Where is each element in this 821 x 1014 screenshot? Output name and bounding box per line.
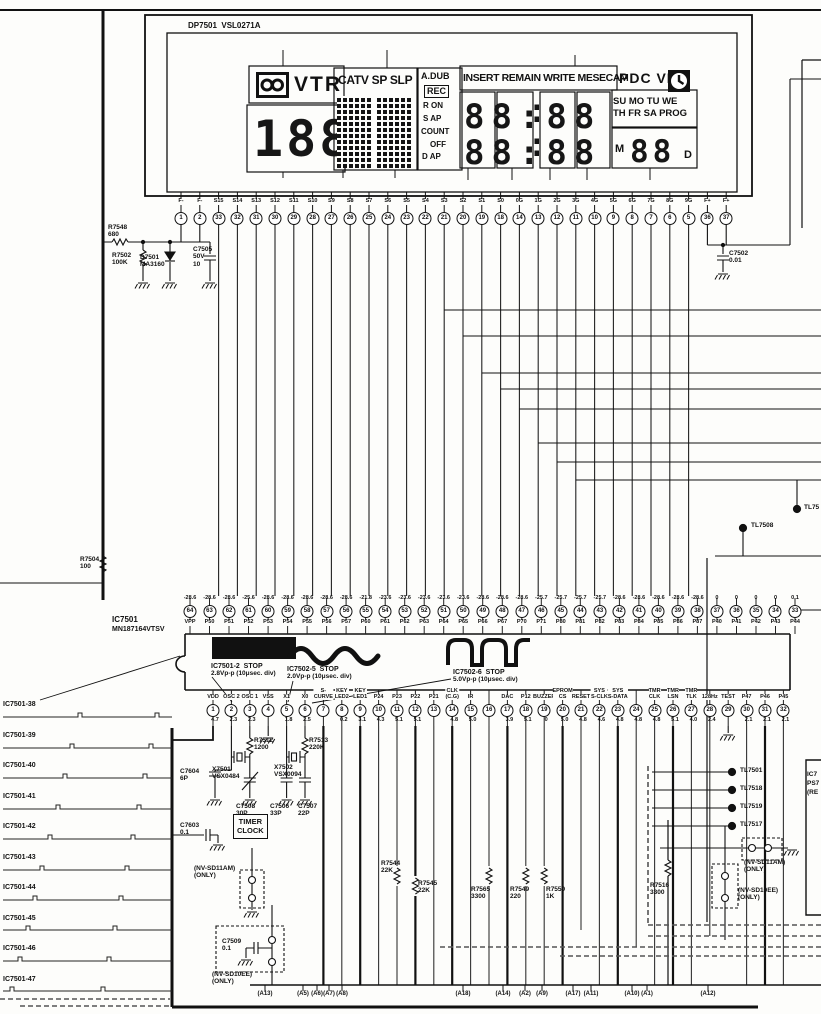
pin-name: TMR LSN [667,688,679,700]
days-row-1: SU MO TU WE [613,96,677,107]
pin-voltage: -28.6 [691,596,704,602]
pin-voltage: -28.6 [633,596,646,602]
lcd-pin-number: 18 [494,212,507,225]
lcd-pin-name: S11 [288,199,299,205]
pin-name: P50 [205,620,215,626]
lcd-pin-number: 31 [250,212,263,225]
pin-name: P55 [302,620,312,626]
date-digits: 88 [630,134,675,170]
pin-name: P12 [521,694,531,700]
pin-voltage: -28.6 [476,596,489,602]
waveform-spec: 2.8Vp-p (10μsec. div) [211,671,276,678]
pin-number: 33 [788,605,801,618]
pin-name: SYS S-DATA [608,688,628,700]
pin-voltage: -23.6 [418,596,431,602]
display-part-number: DP7501 VSL0271A [188,21,261,30]
pin-name: P64 [439,620,449,626]
days-row-2: TH FR SA PROG [613,108,687,119]
pin-voltage: 4.8 [634,718,642,724]
pin-voltage: 4.3 [377,718,385,724]
pin-name: P42 [751,620,761,626]
lcd-pin-number: 6 [663,212,676,225]
lcd-pin-name: F- [196,199,203,205]
pin-voltage: -28.6 [340,596,353,602]
pin-name: P51 [224,620,234,626]
vtr-indicator: VTR [294,73,342,98]
pin-number: 25 [648,704,661,717]
lcd-pin-name: 2G [552,199,561,205]
pin-name: TMR TLK [685,688,697,700]
pin-voltage: 0 [735,596,738,602]
pin-voltage: 5.0 [469,718,477,724]
r7516-branch [665,820,671,985]
lcd-pin-name: 8G [665,199,674,205]
lcd-pin-name: 1G [534,199,543,205]
lcd-pin-number: 33 [212,212,225,225]
pin-number: 30 [740,704,753,717]
lcd-pin-name: S5 [402,199,411,205]
pin-number: 8 [335,704,348,717]
lcd-pin-number: 12 [551,212,564,225]
adub-indicator: A.DUB [421,71,450,82]
flag-off: OFF [430,140,446,149]
pin-name: P83 [614,620,624,626]
pin-name: VPP [184,620,195,626]
signal-label: IC7501-47 [3,976,36,983]
pin-name: TMR CLK [649,688,661,700]
clock-digits-row2: 88:88 [464,133,601,173]
pin-number: 40 [652,605,665,618]
pin-number: 56 [340,605,353,618]
pin-name: P84 [634,620,644,626]
pin-voltage: -28.6 [262,596,275,602]
pin-voltage: 4.8 [579,718,587,724]
pin-voltage: 0 [754,596,757,602]
pin-name: OSC 2 [223,694,240,700]
test-points [652,480,821,830]
signal-label: IC7501-39 [3,732,36,739]
flag-d-ap: D AP [422,152,441,161]
month-label: M [615,143,624,156]
pin-number: 24 [630,704,643,717]
pin-name: P63 [419,620,429,626]
pin-number: 14 [446,704,459,717]
pin-number: 1 [207,704,220,717]
pin-voltage: -25.7 [535,596,548,602]
pin-voltage: -28.6 [672,596,685,602]
pin-voltage: 1.8 [285,718,293,724]
pin-voltage: -21.8 [359,596,372,602]
pin-number: 59 [281,605,294,618]
pin-name: 128Hz [702,694,718,700]
pin-number: 34 [769,605,782,618]
lcd-pin-number: 9 [607,212,620,225]
pin-name: P61 [380,620,390,626]
pin-voltage: 4.8 [450,718,458,724]
pin-voltage: 4.8 [653,718,661,724]
pin-name: P21 [429,694,439,700]
pin-name: P62 [400,620,410,626]
lcd-pin-number: 23 [400,212,413,225]
pin-name: KEY LED2 [335,688,349,700]
ic-ref: IC7501 [112,615,138,624]
lcd-pin-name: S3 [440,199,449,205]
lcd-pin-number: 5 [682,212,695,225]
pin-name: P80 [556,620,566,626]
pin-voltage: -23.6 [437,596,450,602]
mode-indicators: CATV SP SLP [338,73,412,87]
pin-name: VDD [207,694,219,700]
pin-name: P65 [458,620,468,626]
flag-count: COUNT [421,127,449,136]
oscillator-circuits [209,726,728,798]
pin-voltage: -23.6 [379,596,392,602]
pin-voltage: 4.8 [616,718,624,724]
pin-number: 49 [476,605,489,618]
pin-voltage: 3.1 [358,718,366,724]
lcd-pin-name: S15 [213,199,225,205]
pin-name: P24 [374,694,384,700]
pin-voltage: 5.1 [671,718,679,724]
pin-name: EPROM CS [553,688,573,700]
pin-name: X1 [283,694,290,700]
lcd-pin-number: 30 [269,212,282,225]
pin-voltage: -25.6 [242,596,255,602]
pin-name: DAC [501,694,513,700]
lcd-pin-name: S8 [346,199,355,205]
lcd-pin-number: 13 [532,212,545,225]
lcd-pin-name: S1 [477,199,486,205]
pin-number: 17 [501,704,514,717]
cassette-icon [256,72,289,103]
rec-indicator: REC [424,85,449,98]
pin-name: TEST [721,694,735,700]
pin-voltage: -28.6 [652,596,665,602]
pin-voltage: -28.6 [320,596,333,602]
flag-r-on: R ON [423,101,443,110]
lcd-pin-name: F+ [722,199,731,205]
pin-name: CLK (C.G) [445,688,458,700]
pin-number: 57 [320,605,333,618]
lcd-pin-number: 37 [720,212,733,225]
pin-voltage: 2.3 [230,718,238,724]
pin-number: 19 [538,704,551,717]
lcd-pin-name: 4G [590,199,599,205]
pin-name: KEY LED1 [353,688,367,700]
pin-number: 64 [184,605,197,618]
pin-number: 58 [301,605,314,618]
lcd-pin-number: 27 [325,212,338,225]
lcd-pin-number: 28 [306,212,319,225]
pin-name: P86 [673,620,683,626]
signal-label: IC7501-46 [3,945,36,952]
signal-label: IC7501-40 [3,762,36,769]
pin-number: 5 [280,704,293,717]
dot-matrix-char-6g [377,96,412,168]
pin-name: P23 [392,694,402,700]
pin-number: 12 [409,704,422,717]
pin-number: 53 [398,605,411,618]
waveform-title: IC7502-6 STOP [453,669,505,676]
pin-voltage: -28.6 [223,596,236,602]
pin-name: P44 [790,620,800,626]
pin-number: 52 [418,605,431,618]
waveform-spec: 5.0Vp-p (10μsec. div) [453,677,518,684]
pin-voltage: 2.1 [782,718,790,724]
lcd-pin-number: 29 [287,212,300,225]
pin-number: 2 [225,704,238,717]
pin-voltage: -28.6 [515,596,528,602]
lcd-pin-name: S7 [365,199,374,205]
pin-name: P52 [244,620,254,626]
lcd-pin-name: S2 [459,199,468,205]
signal-label: IC7501-45 [3,915,36,922]
lcd-pin-name: 7G [646,199,655,205]
pin-voltage: 4.0 [690,718,698,724]
waveform-title: IC7502-5 STOP [287,666,339,673]
pin-name: P82 [595,620,605,626]
lcd-pin-name: S9 [327,199,336,205]
pin-name: VSS [263,694,274,700]
pin-number: 54 [379,605,392,618]
pin-number: 46 [535,605,548,618]
pin-voltage: 2.1 [763,718,771,724]
pin-number: 51 [437,605,450,618]
pin-number: 35 [749,605,762,618]
pin-number: 27 [685,704,698,717]
pin-voltage: 2.3 [248,718,256,724]
pin-number: 28 [703,704,716,717]
pin-voltage: 4.6 [598,718,606,724]
pin-name: P87 [693,620,703,626]
pin-number: 18 [519,704,532,717]
lcd-pin-stubs [181,192,726,212]
timer-clock-box: TIMER CLOCK [233,814,268,839]
pin-name: X0 [302,694,309,700]
lcd-pin-number: 7 [645,212,658,225]
pin-name: P41 [732,620,742,626]
pin-name: P45 [778,694,788,700]
lcd-pin-name: S12 [269,199,281,205]
pin-number: 38 [691,605,704,618]
pin-voltage: -28.6 [496,596,509,602]
pin-number: 48 [496,605,509,618]
pin-voltage: 0 [715,596,718,602]
pin-number: 22 [593,704,606,717]
lcd-pin-name: 5G [609,199,618,205]
clock-icon [668,70,690,97]
pin-name: P81 [575,620,585,626]
insert-indicators: INSERT REMAIN WRITE MESECAM [463,72,628,84]
lcd-pin-name: S13 [250,199,262,205]
ic-top-stubs [190,598,795,634]
lcd-pin-number: 20 [457,212,470,225]
pin-number: 43 [593,605,606,618]
pin-name: P43 [771,620,781,626]
lcd-pin-number: 22 [419,212,432,225]
pin-voltage: 3.9 [506,718,514,724]
pin-name: IR [468,694,474,700]
pin-voltage: -25.7 [594,596,607,602]
pin-name: P40 [712,620,722,626]
lcd-pin-name: 3G [571,199,580,205]
pin-voltage: -25.7 [555,596,568,602]
pin-number: 15 [464,704,477,717]
lcd-pin-number: 2 [193,212,206,225]
pin-voltage: 5.1 [414,718,422,724]
pin-voltage: -28.6 [184,596,197,602]
pin-voltage: -28.6 [281,596,294,602]
pin-voltage: -28.6 [301,596,314,602]
lcd-pin-name: S14 [231,199,243,205]
lcd-pin-name: S4 [421,199,430,205]
pin-name: P56 [322,620,332,626]
ic-part-number: MN187164VTSV [112,626,165,634]
lcd-pin-number: 11 [569,212,582,225]
pin-number: 6 [299,704,312,717]
pin-number: 16 [483,704,496,717]
pin-voltage: 5.1 [395,718,403,724]
pin-number: 32 [777,704,790,717]
pin-voltage: 2.1 [745,718,753,724]
lcd-pin-name: S10 [307,199,319,205]
pin-number: 50 [457,605,470,618]
pin-number: 20 [556,704,569,717]
signal-label: IC7501-43 [3,854,36,861]
pin-name: P22 [410,694,420,700]
pin-name: P54 [283,620,293,626]
pin-number: 31 [759,704,772,717]
pin-voltage: 2.4 [708,718,716,724]
pin-name: P60 [361,620,371,626]
pin-number: 3 [243,704,256,717]
pin-name: P70 [517,620,527,626]
flag-s-ap: S AP [423,114,441,123]
pin-number: 39 [671,605,684,618]
pin-number: 23 [611,704,624,717]
pin-voltage: -28.6 [203,596,216,602]
pin-name: P53 [263,620,273,626]
pin-name: P85 [653,620,663,626]
pin-number: 37 [710,605,723,618]
pin-voltage: 4.7 [211,718,219,724]
pin-name: SYS S-CLK [591,688,608,700]
day-label: D [684,149,692,162]
pin-name: P71 [536,620,546,626]
pin-number: 21 [575,704,588,717]
lcd-pin-number: 32 [231,212,244,225]
pin-number: 13 [427,704,440,717]
pin-name: P67 [497,620,507,626]
lcd-pin-number: 8 [626,212,639,225]
lcd-pin-name: S6 [383,199,392,205]
pin-number: 60 [262,605,275,618]
pin-name: OSC 1 [242,694,259,700]
pin-name: S- CURVE [314,688,333,700]
pin-number: 9 [354,704,367,717]
pin-number: 42 [613,605,626,618]
pin-number: 7 [317,704,330,717]
lcd-pin-name: 6G [628,199,637,205]
pin-voltage: 5.0 [561,718,569,724]
lcd-pin-name: S0 [496,199,505,205]
pin-voltage: 0.2 [340,718,348,724]
signal-label: IC7501-42 [3,823,36,830]
vdd-wire [172,726,213,740]
pin-name: P57 [341,620,351,626]
lcd-pin-number: 26 [344,212,357,225]
pin-voltage: 0.1 [791,596,799,602]
dot-matrix-char-7g [337,96,371,168]
pin-name: RESET [572,694,590,700]
signal-label: IC7501-38 [3,701,36,708]
pin-number: 29 [722,704,735,717]
lcd-pin-number: 25 [363,212,376,225]
lcd-pin-number: 1 [175,212,188,225]
pin-number: 41 [632,605,645,618]
pin-voltage: 5.1 [524,718,532,724]
pin-voltage: -23.6 [398,596,411,602]
lcd-pin-number: 10 [588,212,601,225]
waveform-title: IC7501-2 STOP [211,663,263,670]
signal-label: IC7501-41 [3,793,36,800]
clock-digits-row1: 88:88 [464,97,601,137]
pin-voltage: -25.7 [574,596,587,602]
lcd-pin-number: 24 [381,212,394,225]
pin-number: 45 [554,605,567,618]
lcd-pin-number: 36 [701,212,714,225]
schematic-canvas: DP7501 VSL0271A VTR 188 CATV SP SLP A.DU… [0,0,821,1014]
pin-number: 36 [730,605,743,618]
lcd-pin-number: 19 [475,212,488,225]
pin-voltage: 2.5 [303,718,311,724]
pin-number: 11 [391,704,404,717]
pin-name: P47 [742,694,752,700]
pin-number: 62 [223,605,236,618]
nv-connectors-right [660,826,788,940]
lcd-pin-number: 14 [513,212,526,225]
pin-number: 55 [359,605,372,618]
lcd-pin-name: 9G [684,199,693,205]
pin-number: 63 [203,605,216,618]
lcd-pin-name: F+ [703,199,712,205]
pin-number: 61 [242,605,255,618]
pin-number: 47 [515,605,528,618]
pin-number: 26 [667,704,680,717]
pin-name: P66 [478,620,488,626]
pin-voltage: 0 [774,596,777,602]
pin-number: 44 [574,605,587,618]
pin-voltage: -28.6 [613,596,626,602]
lcd-pin-number: 21 [438,212,451,225]
waveform-spec: 2.0Vp-p (10μsec. div) [287,674,352,681]
pin-number: 4 [262,704,275,717]
lcd-pin-name: F- [177,199,184,205]
signal-label: IC7501-44 [3,884,36,891]
pin-voltage: -23.6 [457,596,470,602]
pin-name: P46 [760,694,770,700]
pin-voltage: 0 [545,718,548,724]
f-plus-circuit [707,79,821,272]
pin-number: 10 [372,704,385,717]
lcd-pin-name: 0G [515,199,524,205]
